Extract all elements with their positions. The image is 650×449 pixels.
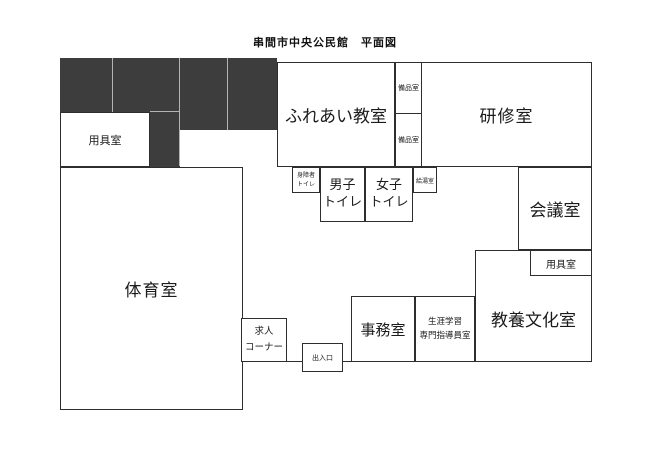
room-supplies-lower: 備品室 [395,113,422,167]
room-label-equipment-upper-left: 用具室 [89,132,122,148]
dark-block-divider [227,58,228,130]
room-label-accessible-toilet: 身障者 トイレ [297,171,315,189]
corridor-wall-segment [287,361,302,362]
room-accessible-toilet: 身障者 トイレ [292,167,320,193]
room-equipment-right: 用具室 [530,250,592,276]
room-label-supplies-upper: 備品室 [398,83,419,93]
room-label-conference: 会議室 [530,196,581,221]
room-label-job-corner: 求人 コーナー [245,324,283,356]
dark-block-top-middle [180,58,277,130]
room-label-culture: 教養文化室 [491,306,576,331]
room-office: 事務室 [351,296,415,362]
room-label-equipment-right: 用具室 [546,256,576,271]
room-mens-toilet: 男子 トイレ [320,167,365,222]
room-supplies-upper: 備品室 [395,62,422,114]
dark-block-divider [150,111,180,112]
room-label-hot-water: 給湯室 [416,176,434,185]
room-conference: 会議室 [518,167,592,250]
dark-block-top-left [60,58,180,112]
room-fureai-classroom: ふれあい教室 [277,62,395,167]
dark-block-small [150,112,180,168]
room-lifelong-learning-office: 生涯学習 専門指導員室 [415,296,475,362]
room-label-supplies-lower: 備品室 [398,135,419,145]
dark-block-divider [112,58,113,112]
plan-title: 串間市中央公民館 平面図 [0,34,650,50]
room-hot-water: 給湯室 [413,167,437,193]
corridor-wall-segment [343,361,351,362]
room-job-corner: 求人 コーナー [241,318,287,362]
room-gymnasium: 体育室 [60,167,243,410]
room-label-womens-toilet: 女子 トイレ [369,178,408,212]
floor-plan: 串間市中央公民館 平面図 用具室 体育室 ふれあい教室 備品室 備品室 研修室 … [0,0,650,449]
dark-block-divider [179,58,180,166]
room-label-training: 研修室 [480,102,534,127]
room-equipment-upper-left: 用具室 [60,112,150,167]
room-entrance: 出入口 [302,343,343,372]
room-label-mens-toilet: 男子 トイレ [323,178,362,212]
room-training: 研修室 [421,62,592,167]
room-label-gymnasium: 体育室 [125,276,179,301]
room-label-entrance: 出入口 [312,353,333,363]
room-womens-toilet: 女子 トイレ [365,167,413,222]
room-label-office: 事務室 [360,319,405,340]
room-label-fureai-classroom: ふれあい教室 [285,102,387,127]
room-label-lifelong-learning-office: 生涯学習 専門指導員室 [419,315,470,344]
